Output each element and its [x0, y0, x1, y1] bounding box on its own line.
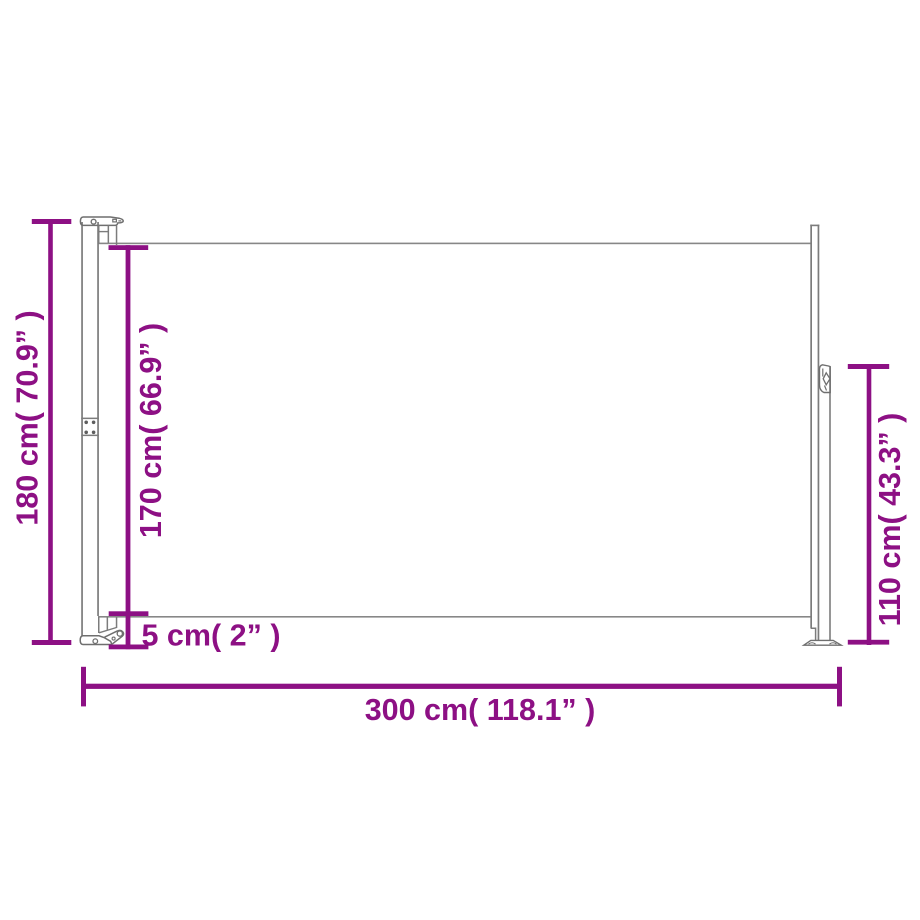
svg-text:110 cm( 43.3” ): 110 cm( 43.3” )	[873, 413, 907, 627]
svg-text:180 cm( 70.9” ): 180 cm( 70.9” )	[11, 310, 45, 525]
svg-text:300 cm( 118.1” ): 300 cm( 118.1” )	[365, 693, 596, 727]
svg-text:170 cm( 66.9” ): 170 cm( 66.9” )	[134, 323, 168, 538]
svg-text:5 cm( 2” ): 5 cm( 2” )	[142, 619, 281, 653]
